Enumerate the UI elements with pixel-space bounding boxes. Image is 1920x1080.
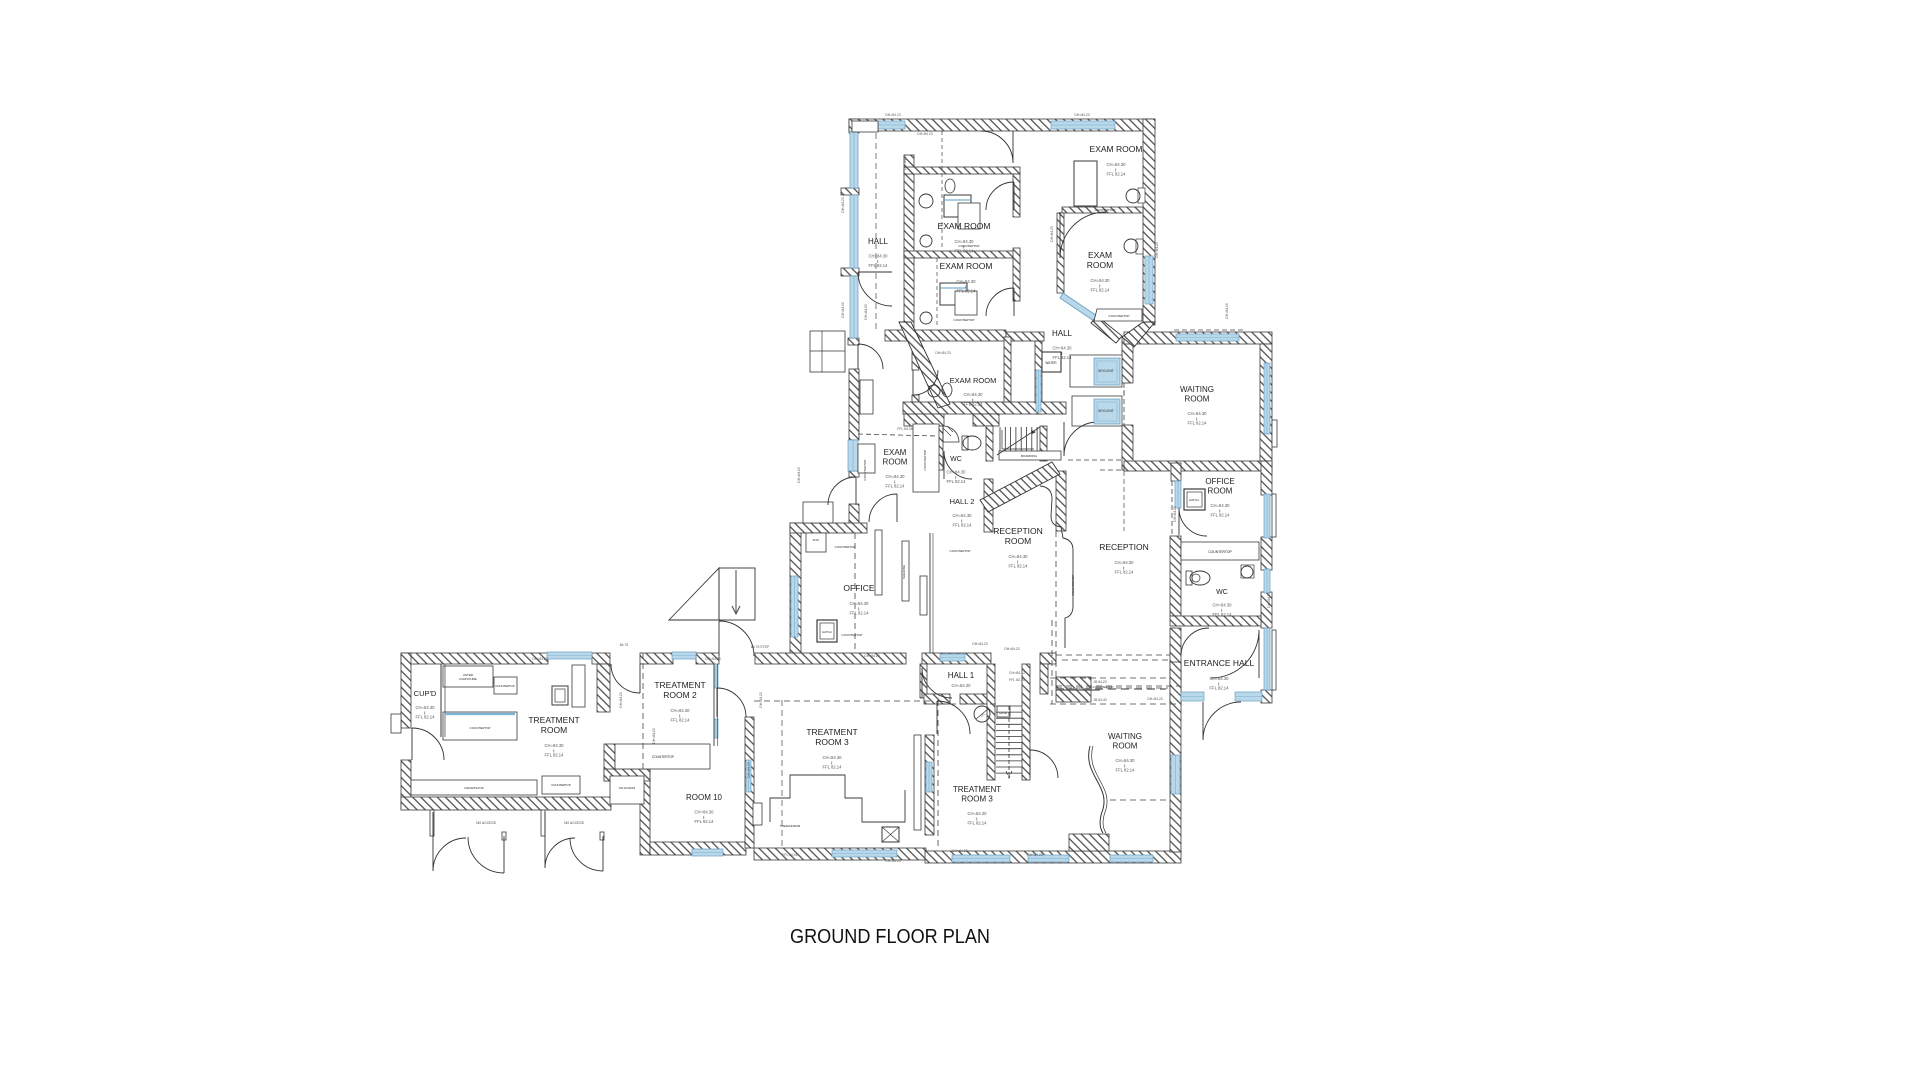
- svg-text:CH=84.30: CH=84.30: [1210, 676, 1230, 681]
- svg-text:HATCH: HATCH: [822, 630, 831, 634]
- svg-text:COUNTERTOP: COUNTERTOP: [1208, 550, 1232, 554]
- svg-text:FFL 84.05: FFL 84.05: [782, 853, 797, 857]
- svg-text:ROOM: ROOM: [541, 725, 567, 735]
- svg-text:DH=84.23: DH=84.23: [917, 132, 932, 136]
- svg-text:CH=84.12: CH=84.12: [1009, 671, 1025, 675]
- svg-text:CH=84.30: CH=84.30: [823, 755, 843, 760]
- svg-text:CH=84.30: CH=84.30: [1053, 346, 1073, 351]
- svg-text:SHELVING: SHELVING: [902, 565, 906, 579]
- svg-text:DH=84.23: DH=84.23: [619, 692, 623, 707]
- svg-text:FFL 82.14: FFL 82.14: [1091, 288, 1111, 293]
- svg-text:COUNTERTOP: COUNTERTOP: [842, 633, 863, 637]
- svg-text:TREATMENT: TREATMENT: [806, 727, 857, 737]
- svg-text:COUNTERTOP: COUNTERTOP: [1071, 575, 1075, 596]
- svg-text:GRANITETOP: GRANITETOP: [464, 786, 483, 790]
- svg-text:ROOM 10: ROOM 10: [686, 793, 723, 802]
- svg-text:TREATMENT: TREATMENT: [654, 680, 705, 690]
- svg-text:DH=84.23: DH=84.23: [841, 302, 845, 317]
- svg-text:FFL 82.14: FFL 82.14: [886, 484, 906, 489]
- svg-text:CH=84.30: CH=84.30: [1091, 278, 1111, 283]
- svg-text:ROOM: ROOM: [1208, 487, 1233, 496]
- svg-text:FFL 82.14: FFL 82.14: [947, 479, 967, 484]
- svg-text:CH=84.30: CH=84.30: [952, 683, 972, 688]
- svg-text:FFL 82.14: FFL 82.14: [955, 249, 975, 254]
- svg-text:HALL 1: HALL 1: [948, 671, 975, 680]
- svg-text:COUNTERTOP: COUNTERTOP: [495, 684, 515, 688]
- svg-text:EXAM ROOM: EXAM ROOM: [940, 261, 993, 271]
- svg-text:COUNTERTOP: COUNTERTOP: [1093, 685, 1114, 689]
- svg-text:DH=84.23: DH=84.23: [972, 642, 987, 646]
- svg-text:OFFICE: OFFICE: [1205, 477, 1234, 486]
- svg-text:WATER: WATER: [1045, 361, 1057, 365]
- svg-text:WC: WC: [950, 456, 962, 463]
- svg-text:W.M.: W.M.: [813, 538, 820, 542]
- svg-text:FFL 82.14: FFL 82.14: [850, 611, 870, 616]
- svg-text:ROOM 2: ROOM 2: [663, 690, 697, 700]
- svg-text:COUNTERTOP: COUNTERTOP: [950, 549, 971, 553]
- svg-text:DH=84.23: DH=84.23: [747, 762, 751, 777]
- svg-text:FFL 82.14: FFL 82.14: [1053, 355, 1073, 360]
- svg-text:CH=84.30: CH=84.30: [1116, 758, 1136, 763]
- svg-text:ROOM: ROOM: [1087, 260, 1113, 270]
- svg-text:HALL 2: HALL 2: [950, 497, 975, 506]
- svg-text:CH=84.30: CH=84.30: [695, 810, 715, 815]
- svg-text:FFL 82.14: FFL 82.14: [1188, 421, 1208, 426]
- svg-text:DH=84.23: DH=84.23: [885, 113, 900, 117]
- svg-text:COUNTERTOP: COUNTERTOP: [959, 244, 980, 248]
- svg-text:WAITING: WAITING: [1108, 732, 1142, 741]
- svg-text:FFL 82.14: FFL 82.14: [1211, 513, 1231, 518]
- svg-text:FFL 82.14: FFL 82.14: [1115, 570, 1135, 575]
- svg-text:CH=84.30: CH=84.30: [850, 601, 870, 606]
- svg-text:DH=84.23: DH=84.23: [705, 657, 720, 661]
- svg-text:FFL 82.14: FFL 82.14: [1213, 612, 1233, 617]
- svg-text:CH=84.30: CH=84.30: [957, 279, 977, 284]
- svg-text:DH=84.23: DH=84.23: [952, 849, 967, 853]
- svg-text:ROOM: ROOM: [1005, 536, 1031, 546]
- svg-text:FFL 82.14: FFL 82.14: [964, 402, 984, 407]
- svg-text:DH=84.23: DH=84.23: [841, 197, 845, 212]
- svg-text:COUNTERTOP: COUNTERTOP: [1109, 314, 1130, 318]
- svg-text:CH=84.30: CH=84.30: [1211, 503, 1231, 508]
- svg-text:ENTRANCE HALL: ENTRANCE HALL: [1184, 658, 1255, 668]
- svg-text:OFFICE: OFFICE: [843, 583, 874, 593]
- svg-text:CUP'D: CUP'D: [414, 689, 437, 698]
- svg-text:DH=84.23: DH=84.23: [652, 728, 656, 743]
- svg-text:BOARDING: BOARDING: [1021, 454, 1038, 458]
- svg-text:NO ACCESS: NO ACCESS: [476, 821, 497, 825]
- svg-text:FFL 82.14: FFL 82.14: [823, 765, 843, 770]
- svg-text:FFL 84.05: FFL 84.05: [897, 427, 912, 431]
- svg-text:FFL 82.14: FFL 82.14: [1116, 768, 1136, 773]
- svg-text:FFL 82.14: FFL 82.14: [1107, 172, 1127, 177]
- svg-text:FFL 82.20: FFL 82.20: [1009, 678, 1025, 682]
- svg-text:EXAM: EXAM: [884, 448, 907, 457]
- svg-text:DH=84.23: DH=84.23: [864, 304, 868, 319]
- svg-text:FFL 82.14: FFL 82.14: [968, 821, 988, 826]
- svg-text:DH=84.23: DH=84.23: [1155, 242, 1159, 257]
- svg-text:FURNITURE: FURNITURE: [459, 677, 476, 681]
- svg-text:COUNTERTOP: COUNTERTOP: [470, 726, 491, 730]
- svg-text:DH=84.23: DH=84.23: [1027, 853, 1042, 857]
- svg-text:FFL 82.14: FFL 82.14: [1009, 564, 1029, 569]
- svg-text:COUNTERTOP: COUNTERTOP: [835, 545, 856, 549]
- svg-text:DH=84.23: DH=84.23: [1074, 113, 1089, 117]
- svg-text:CH=84.30: CH=84.30: [869, 254, 889, 259]
- svg-text:CH=84.30: CH=84.30: [1188, 411, 1208, 416]
- svg-text:TREATMENT: TREATMENT: [953, 785, 1001, 794]
- svg-text:CH=84.30: CH=84.30: [947, 470, 967, 475]
- svg-text:RECEPTION: RECEPTION: [993, 526, 1043, 536]
- svg-text:RECEPTION: RECEPTION: [1099, 542, 1149, 552]
- svg-text:DH=84.23: DH=84.23: [797, 467, 801, 482]
- svg-text:EXAM: EXAM: [1088, 250, 1112, 260]
- svg-text:FFL 82.14: FFL 82.14: [869, 263, 889, 268]
- svg-text:CH=84.30: CH=84.30: [1009, 554, 1029, 559]
- svg-text:COUNTERTOP: COUNTERTOP: [863, 460, 867, 481]
- svg-text:84.75 STEP: 84.75 STEP: [751, 645, 770, 649]
- svg-text:DH=84.23: DH=84.23: [935, 351, 950, 355]
- svg-text:COUNTERTOP: COUNTERTOP: [923, 450, 927, 471]
- svg-text:ROOM 3: ROOM 3: [815, 737, 849, 747]
- svg-text:JB 84.40: JB 84.40: [1093, 698, 1106, 702]
- svg-text:84.75: 84.75: [620, 643, 629, 647]
- svg-text:DH=84.23: DH=84.23: [1173, 506, 1177, 521]
- svg-text:TREATMENT: TREATMENT: [528, 715, 579, 725]
- svg-text:CH=84.30: CH=84.30: [545, 743, 565, 748]
- svg-text:TREADONROM: TREADONROM: [780, 824, 801, 828]
- svg-text:CH=84.30: CH=84.30: [1107, 162, 1127, 167]
- svg-text:SKYLIGHT: SKYLIGHT: [1098, 409, 1114, 413]
- svg-text:COUNTERTOP: COUNTERTOP: [652, 755, 674, 759]
- svg-text:DH=84.23: DH=84.23: [1267, 592, 1271, 607]
- svg-text:GROUND FLOOR PLAN: GROUND FLOOR PLAN: [790, 926, 990, 948]
- svg-text:NO ACCESS: NO ACCESS: [619, 786, 635, 790]
- svg-text:DH=84.23: DH=84.23: [1050, 226, 1054, 241]
- svg-text:FFL 82.14: FFL 82.14: [671, 718, 691, 723]
- svg-text:EXAM ROOM: EXAM ROOM: [938, 221, 991, 231]
- svg-text:DH=84.23: DH=84.23: [1225, 303, 1229, 318]
- svg-text:FFL 82.14: FFL 82.14: [957, 289, 977, 294]
- svg-text:COUNTERTOP: COUNTERTOP: [551, 783, 571, 787]
- svg-text:ROOM 3: ROOM 3: [961, 795, 993, 804]
- svg-text:DH=84.23: DH=84.23: [864, 654, 879, 658]
- svg-text:FFL 82.14: FFL 82.14: [695, 819, 715, 824]
- svg-text:WC: WC: [1216, 589, 1228, 596]
- svg-text:CH=84.30: CH=84.30: [964, 392, 984, 397]
- svg-text:FFL 82.14: FFL 82.14: [1210, 686, 1230, 691]
- svg-text:CH=84.30: CH=84.30: [886, 474, 906, 479]
- svg-text:CH=84.30: CH=84.30: [953, 513, 973, 518]
- svg-text:NO ACCESS: NO ACCESS: [564, 821, 585, 825]
- svg-text:CH=84.30: CH=84.30: [1213, 603, 1233, 608]
- svg-text:FFL 82.14: FFL 82.14: [545, 753, 565, 758]
- svg-text:CH=84.30: CH=84.30: [416, 705, 436, 710]
- svg-text:HALL: HALL: [1052, 329, 1073, 338]
- svg-text:DH=84.23: DH=84.23: [1147, 697, 1162, 701]
- svg-text:ROOM: ROOM: [1185, 395, 1210, 404]
- svg-text:CH=84.30: CH=84.30: [968, 811, 988, 816]
- svg-text:COUNTERTOP: COUNTERTOP: [954, 318, 975, 322]
- svg-text:DH=84.23: DH=84.23: [903, 154, 907, 169]
- svg-text:SKYLIGHT: SKYLIGHT: [1098, 369, 1114, 373]
- svg-text:DH=84.23: DH=84.23: [1004, 647, 1019, 651]
- svg-text:GATE: GATE: [999, 711, 1007, 715]
- svg-text:HALL: HALL: [868, 237, 889, 246]
- svg-text:CH=84.30: CH=84.30: [1115, 560, 1135, 565]
- svg-text:EXAM ROOM: EXAM ROOM: [950, 376, 997, 385]
- svg-text:DH=84.23: DH=84.23: [532, 657, 547, 661]
- svg-text:CH=84.30: CH=84.30: [671, 708, 691, 713]
- svg-text:JB 84.20: JB 84.20: [1093, 680, 1106, 684]
- svg-text:ROOM: ROOM: [883, 458, 908, 467]
- svg-text:FFL 82.14: FFL 82.14: [953, 523, 973, 528]
- svg-text:EXAM ROOM: EXAM ROOM: [1090, 144, 1143, 154]
- svg-text:DH=84.23: DH=84.23: [885, 859, 900, 863]
- svg-text:COUNTERTOP: COUNTERTOP: [1095, 208, 1116, 212]
- svg-text:WAITING: WAITING: [1180, 385, 1214, 394]
- svg-text:FFL 82.14: FFL 82.14: [416, 715, 436, 720]
- svg-text:ROOM: ROOM: [1113, 742, 1138, 751]
- svg-text:DH=84.23: DH=84.23: [759, 692, 763, 707]
- svg-text:HATCH: HATCH: [1189, 498, 1198, 502]
